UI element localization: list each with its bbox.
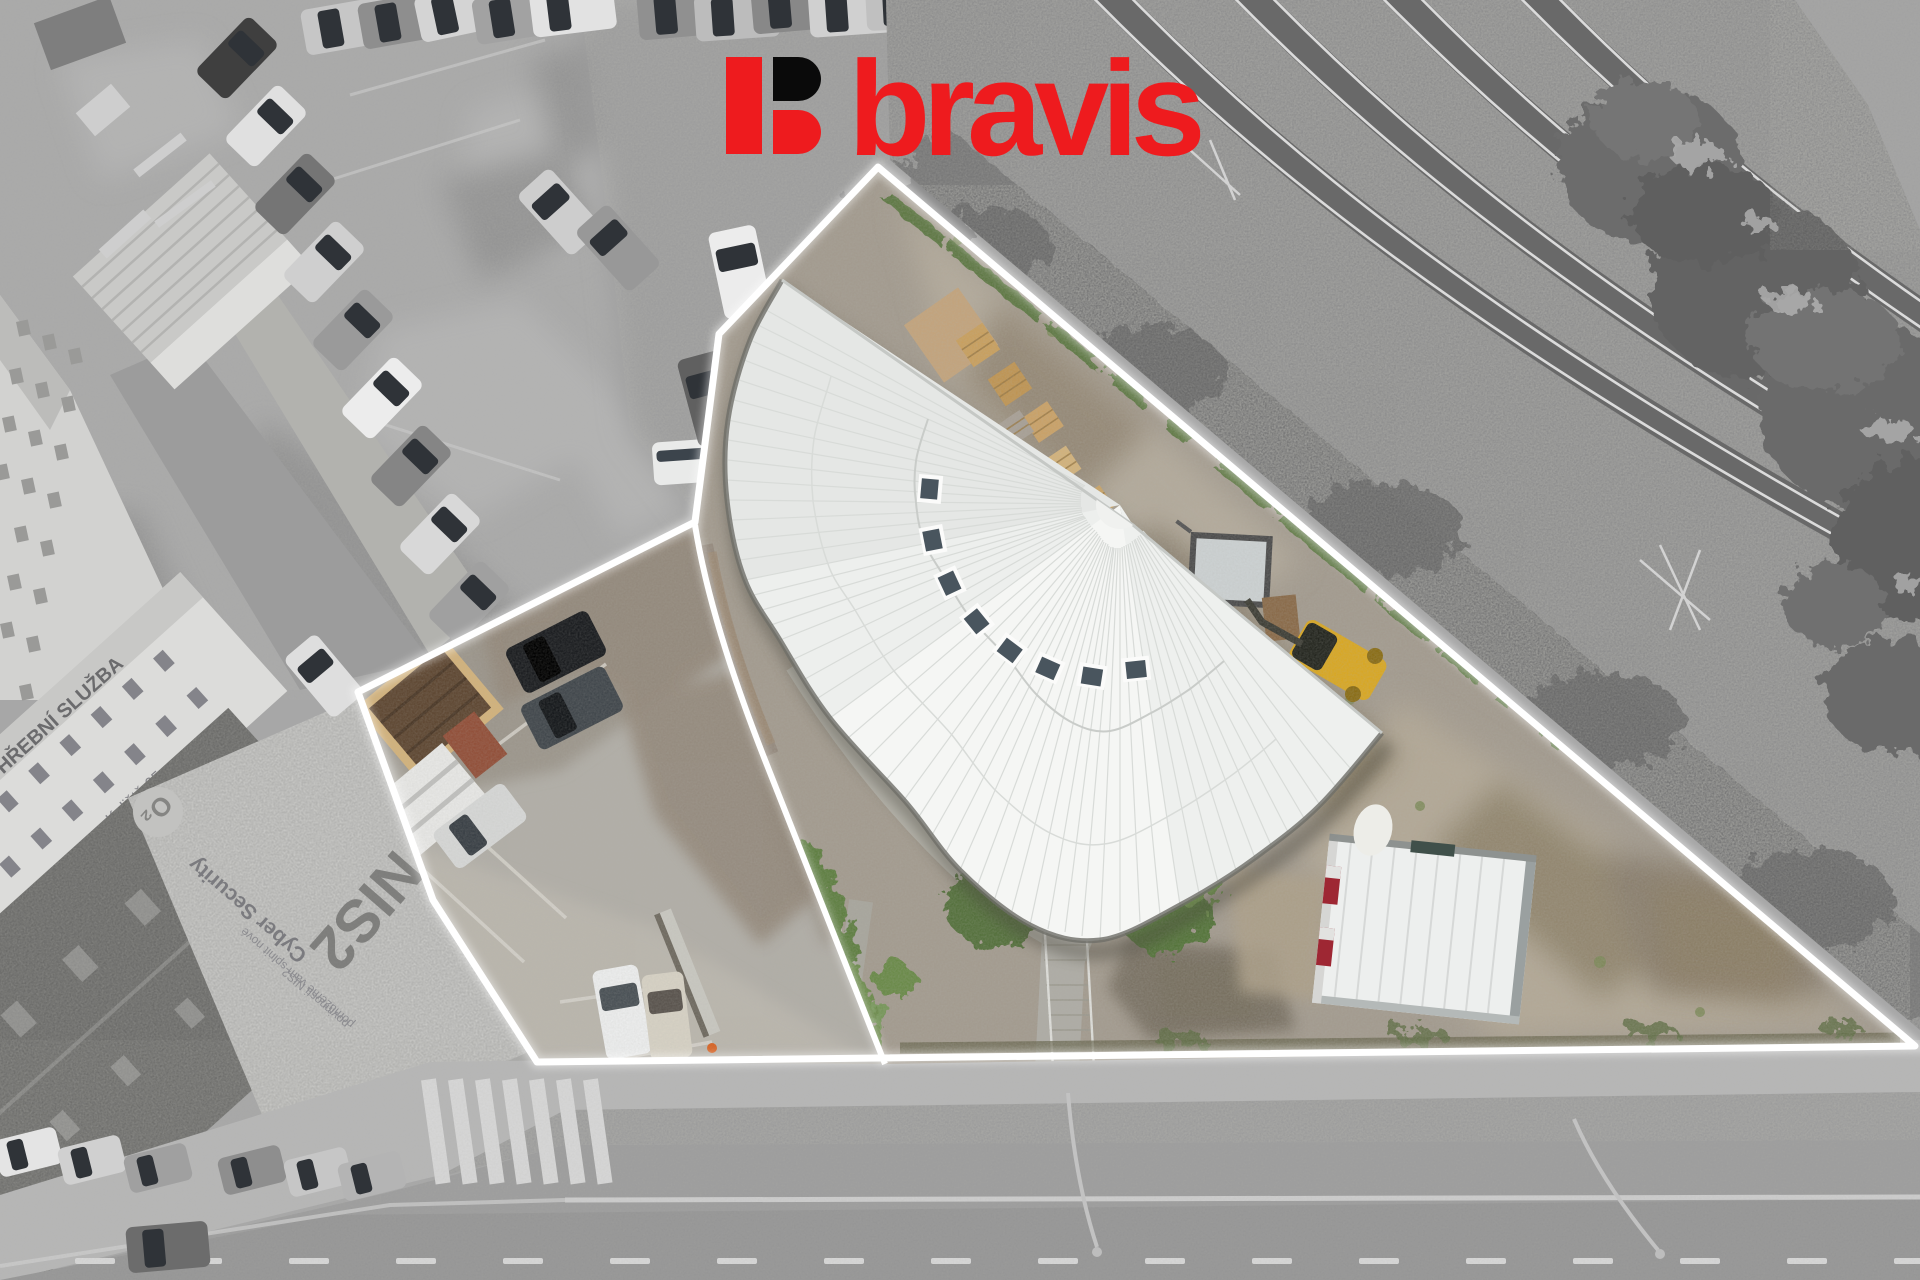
svg-text:bravis: bravis (848, 33, 1201, 184)
